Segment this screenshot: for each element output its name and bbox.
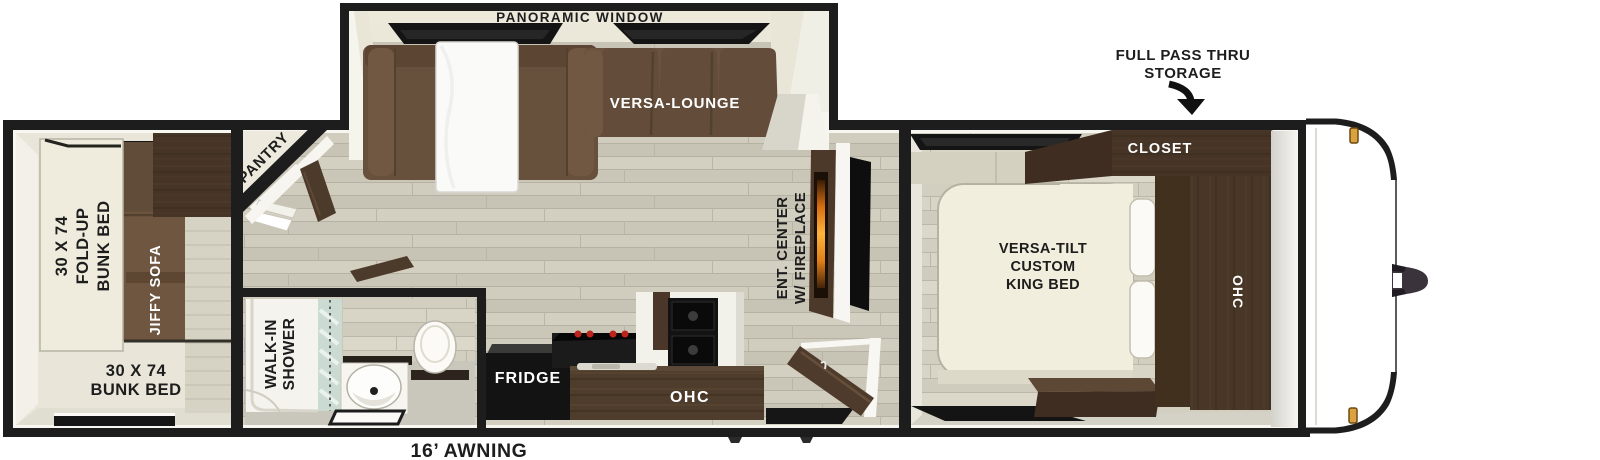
svg-text:VERSA-TILT: VERSA-TILT [999,241,1087,257]
svg-text:BUNK BED: BUNK BED [90,381,181,399]
svg-text:WALK-IN: WALK-IN [263,319,280,389]
svg-text:VERSA-LOUNGE: VERSA-LOUNGE [610,95,740,112]
svg-text:OHC: OHC [1230,275,1246,309]
svg-text:BUNK BED: BUNK BED [95,200,113,291]
svg-text:SHOWER: SHOWER [281,318,298,391]
svg-text:FRIDGE: FRIDGE [495,370,561,387]
svg-text:STORAGE: STORAGE [1144,65,1221,82]
svg-text:30 X 74: 30 X 74 [53,215,71,276]
svg-text:ENT. CENTER: ENT. CENTER [774,197,791,300]
svg-text:FULL PASS THRU: FULL PASS THRU [1116,47,1251,64]
svg-text:CUSTOM: CUSTOM [1011,259,1076,275]
svg-text:CLOSET: CLOSET [1128,141,1193,157]
svg-text:KING BED: KING BED [1006,277,1080,293]
svg-text:JIFFY SOFA: JIFFY SOFA [148,245,164,336]
svg-text:30 X 74: 30 X 74 [106,362,167,380]
svg-text:FOLD-UP: FOLD-UP [74,208,92,285]
svg-text:PANORAMIC WINDOW: PANORAMIC WINDOW [496,10,664,25]
svg-text:OHC: OHC [670,389,710,406]
svg-text:16’ AWNING: 16’ AWNING [411,440,528,460]
svg-text:W/ FIREPLACE: W/ FIREPLACE [792,192,809,304]
